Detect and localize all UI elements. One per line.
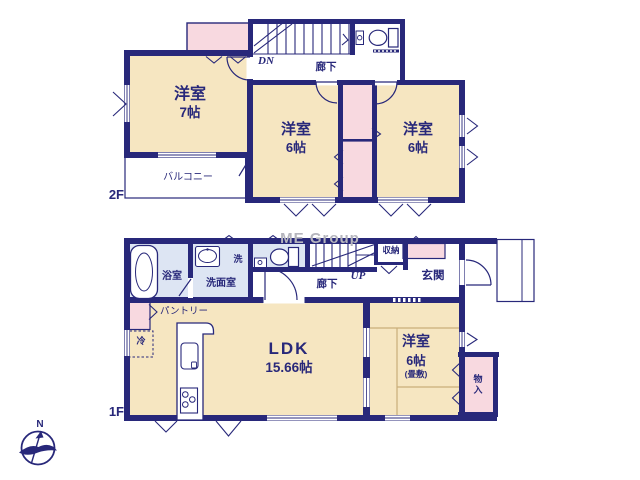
tatami-room-size: 6帖 <box>406 355 425 369</box>
floorplan-2f <box>113 19 478 216</box>
tatami-room-name: 洋室 <box>402 334 430 349</box>
washbasin-icon <box>196 247 220 267</box>
floorplan-page: 2F 洋室 7帖 洋室 6帖 洋室 6帖 DN 廊下 バルコニー 1F 浴室 洗… <box>0 0 640 480</box>
room-name-2f-east: 洋室 <box>403 122 433 139</box>
entrance-label: 玄関 <box>422 270 445 283</box>
watermark: ME Group <box>280 231 360 248</box>
ldk-size: 15.66帖 <box>265 361 312 376</box>
closet-2f-west <box>187 23 250 54</box>
room-name-2f-center: 洋室 <box>281 122 311 139</box>
room-size-2f-center: 6帖 <box>286 141 306 155</box>
tatami-room-note: (畳敷) <box>405 370 428 379</box>
room-size-2f-west: 7帖 <box>179 106 200 121</box>
room-size-2f-east: 6帖 <box>408 141 428 155</box>
storage-label: 収納 <box>382 246 399 255</box>
floor-label-2f: 2F <box>96 188 124 202</box>
storage-closet-label: 物入 <box>473 374 484 396</box>
floor-label-1f: 1F <box>96 405 124 419</box>
entrance-porch <box>497 240 534 302</box>
balcony-label: バルコニー <box>163 172 213 183</box>
stairs-label-up: UP <box>351 270 366 282</box>
bathtub-icon <box>131 246 158 299</box>
stairs-label-dn: DN <box>258 55 274 67</box>
toilet-icon-2f <box>356 29 398 48</box>
floorplan-1f <box>124 236 534 437</box>
compass-icon <box>19 431 57 465</box>
pantry-label: パントリー <box>160 307 208 317</box>
ldk-name: LDK <box>269 340 310 359</box>
compass-north-label: N <box>36 419 43 430</box>
pantry-closet <box>127 301 151 330</box>
hallway-label-1f: 廊下 <box>317 279 338 291</box>
entrance-closet <box>403 244 445 259</box>
fridge-label: 冷 <box>136 337 145 347</box>
bath-label: 浴室 <box>162 271 182 282</box>
laundry-label: 洗 <box>233 255 242 265</box>
room-name-2f-west: 洋室 <box>174 86 206 104</box>
washroom-label: 洗面室 <box>206 278 236 289</box>
hallway-label-2f: 廊下 <box>316 62 337 74</box>
